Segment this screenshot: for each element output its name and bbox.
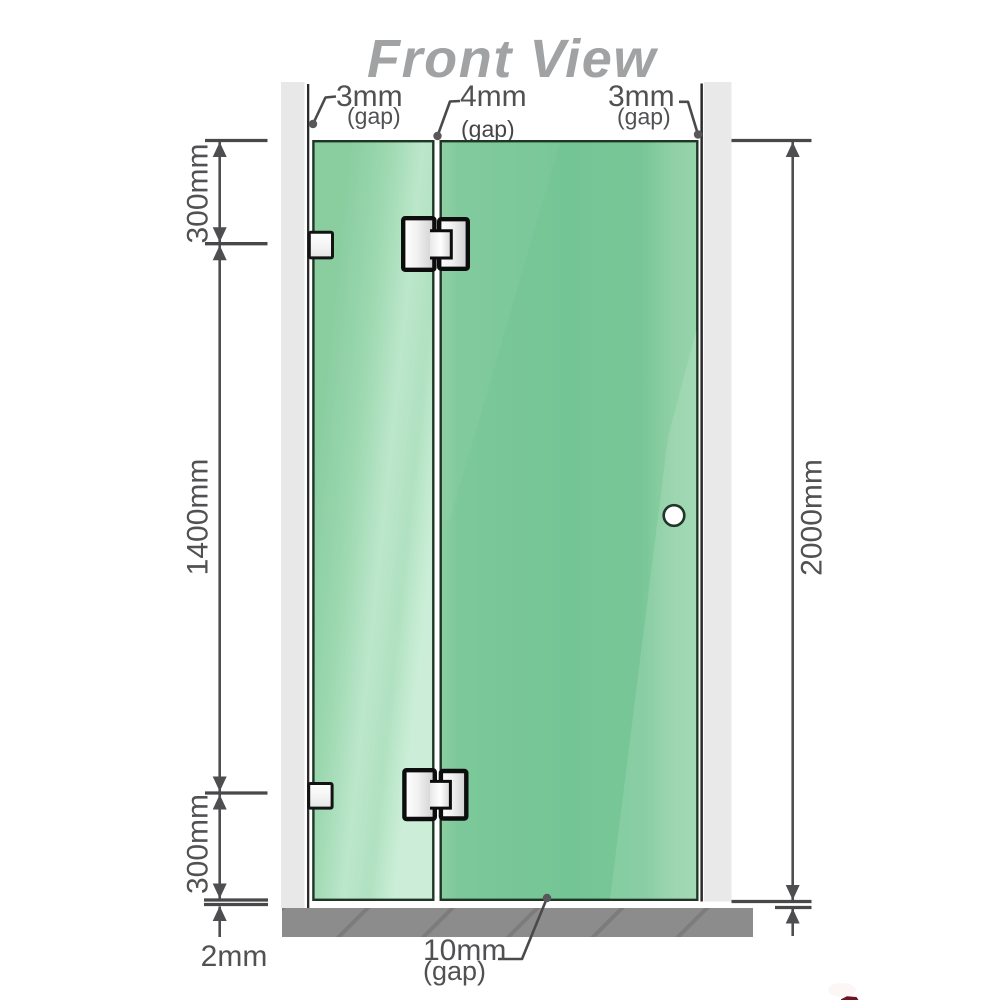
svg-text:300mm: 300mm bbox=[182, 143, 215, 243]
svg-text:2mm: 2mm bbox=[201, 940, 268, 973]
svg-text:4mm: 4mm bbox=[460, 80, 527, 113]
svg-text:(gap): (gap) bbox=[423, 956, 486, 986]
svg-text:1400mm: 1400mm bbox=[182, 459, 215, 576]
svg-text:2000mm: 2000mm bbox=[796, 459, 829, 576]
svg-text:(gap): (gap) bbox=[617, 104, 671, 130]
svg-text:(gap): (gap) bbox=[461, 116, 515, 142]
svg-text:300mm: 300mm bbox=[182, 794, 215, 894]
svg-text:(gap): (gap) bbox=[347, 103, 401, 129]
